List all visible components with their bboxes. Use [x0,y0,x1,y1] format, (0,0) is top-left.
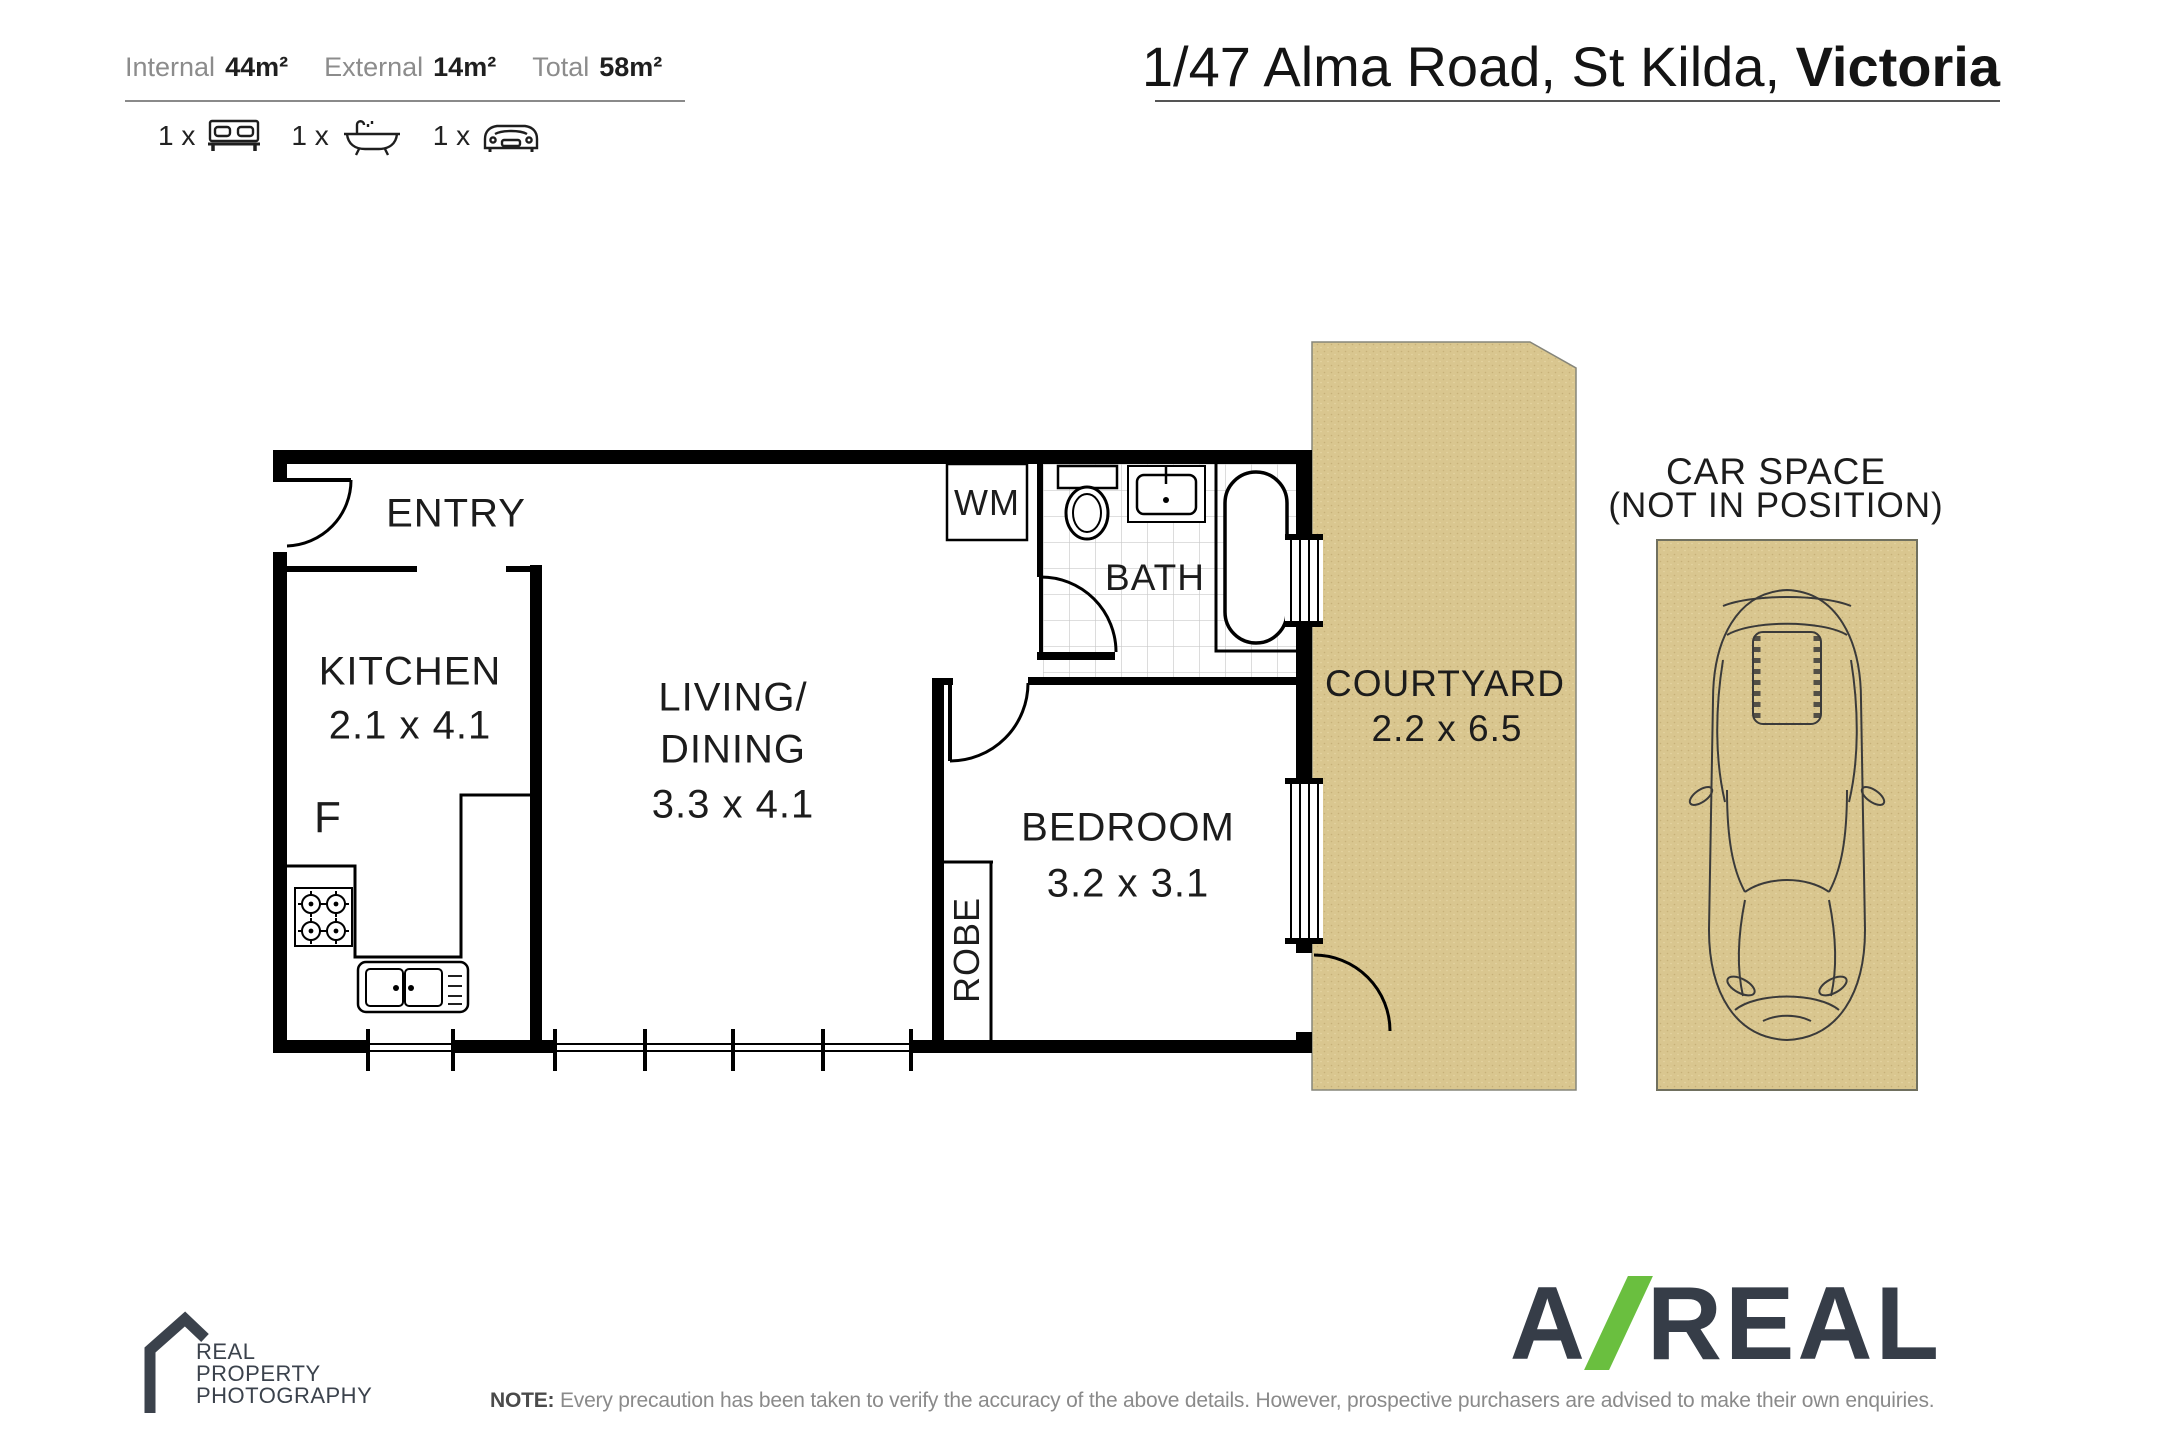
areal-logo-a: A [1510,1278,1588,1370]
wall-kitchen-top-tab [506,566,530,572]
wall-bath-south-stub [1037,652,1115,660]
stove-cooktop [295,888,352,946]
label-courtyard: COURTYARD [1325,663,1565,705]
window-living [553,1029,913,1071]
label-living-dims: 3.3 x 4.1 [652,783,814,828]
kitchen-sink [358,962,468,1012]
label-carspace-2: (NOT IN POSITION) [1608,486,1943,526]
photographer-line-3: PHOTOGRAPHY [196,1385,372,1407]
window-kitchen [366,1029,455,1071]
label-wm: WM [954,482,1020,524]
label-bath: BATH [1105,557,1205,599]
label-entry: ENTRY [386,492,526,537]
photographer-logo-text: REAL PROPERTY PHOTOGRAPHY [196,1341,372,1407]
floorplan-drawing [0,0,2160,1440]
wall-bath-west [1037,464,1043,577]
wall-kitchen-living [530,565,542,1040]
label-bedroom-dims: 3.2 x 3.1 [1047,862,1209,907]
label-living-1: LIVING/ [658,676,807,721]
door-entry [287,480,351,546]
label-living-2: DINING [660,728,806,773]
wall-living-bedroom [932,683,944,1040]
label-fridge: F [314,793,342,843]
wall-kitchen-top [287,566,417,572]
label-kitchen-dims: 2.1 x 4.1 [329,704,491,749]
bathtub [1225,472,1287,643]
photographer-line-2: PROPERTY [196,1363,372,1385]
vanity-sink [1128,466,1205,522]
wall-bottom-2 [453,1040,555,1053]
window-bedroom [1285,778,1323,944]
photographer-line-1: REAL [196,1341,372,1363]
wall-east-2 [1296,623,1312,783]
label-kitchen: KITCHEN [319,650,502,695]
floorplan-page: Internal 44m² External 14m² Total 58m² 1… [0,0,2160,1440]
label-courtyard-dims: 2.2 x 6.5 [1372,708,1523,750]
wall-east-4 [1296,1032,1312,1053]
wall-bottom-3 [913,1040,1312,1053]
areal-logo-slash-icon [1584,1276,1653,1370]
wall-bottom-1 [273,1040,368,1053]
label-robe: ROBE [946,897,988,1003]
areal-logo: A REAL [1510,1276,1942,1370]
wall-bedroom-north [1028,677,1296,685]
wall-left-lower [273,552,287,1053]
disclaimer-note: NOTE: Every precaution has been taken to… [490,1389,1810,1413]
door-bedroom [950,683,1028,761]
wall-top [273,450,1312,464]
kitchen-fixtures [273,795,530,1012]
areal-logo-real: REAL [1647,1278,1942,1370]
wall-east-1 [1296,450,1312,538]
disclaimer-text: Every precaution has been taken to verif… [554,1389,1934,1412]
carspace-area [1657,540,1917,1090]
wall-left-upper [273,450,287,482]
label-bedroom: BEDROOM [1021,806,1235,851]
window-bath [1285,534,1323,627]
disclaimer-label: NOTE: [490,1389,554,1412]
